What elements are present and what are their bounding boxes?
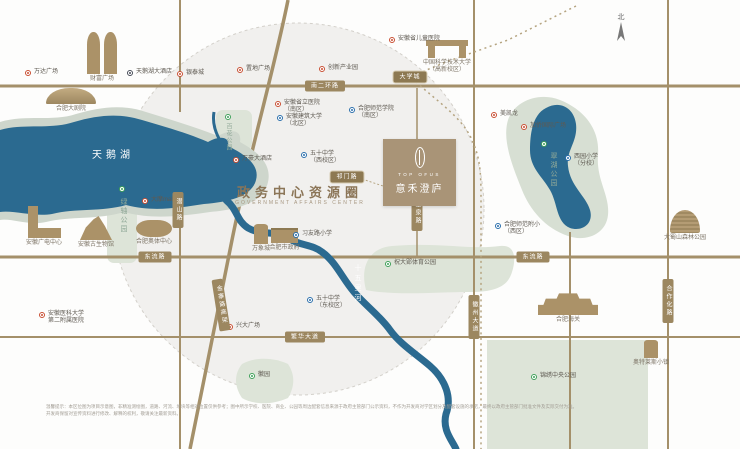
caifu-plaza-icon-part [87,32,100,74]
compass: 北 [608,14,634,49]
north-arrow-icon [616,22,626,46]
grand-theater-label: 合肥大剧院 [56,106,86,113]
provincial-hospital-south-label-line: （南区） [284,107,320,114]
caifu-plaza-label-line: 财富广场 [90,76,114,83]
luzhou-axis-name-text: 绿轴公园 [118,198,128,234]
children-hospital-label: 安徽省儿童医院 [398,36,440,43]
innovation-industry-park-label-line: 创新产业园 [328,65,358,72]
city-government-label: 合肥市政府 [269,245,299,252]
dashu-mountain-icon [670,210,700,233]
xiyoulu-primary-label-line: 习友路小学 [302,231,332,238]
jinxiu-central-park-label-line: 锦绣中央公园 [540,373,576,380]
huiyuan-park-label: 徽园 [258,372,270,379]
poi-shiwuli-river-name: 十五里河 [352,264,362,304]
damo-mall-label: 大摩mall [151,197,174,204]
location-map: 政务中心资源圈 GOVERNMENT AFFAIRS CENTER TOP OF… [0,0,740,449]
jiaqiao-intl-plaza-marker [521,124,527,130]
dongliu-road-east-badge: 东流路 [516,252,549,263]
zhudaying-sports-park-label: 祝大郢体育公园 [394,260,436,267]
anhui-jianzhu-univ-label-line: 安徽建筑大学 [286,114,322,121]
anhui-jianzhu-univ-marker-core [279,117,281,119]
marriott-hotel-marker [233,157,239,163]
olympic-sports-center-label-line: 合肥奥体中心 [136,239,172,246]
hezuohua-road-badge: 合作化路 [663,279,674,323]
ahtv-center-label-line: 安徽广电中心 [26,240,62,247]
jiaqiao-intl-plaza-marker-core [523,126,525,128]
project-lens-icon [415,147,425,168]
anyi-second-hospital-marker-core [41,314,43,316]
poi-small-park-name: 百花公园 [224,123,233,151]
paleontology-museum-label: 安徽古生物馆 [78,242,114,249]
swan-lake-hotel-marker-core [129,72,131,74]
yintai-city-label: 银泰城 [186,70,204,77]
children-hospital-marker [389,37,395,43]
xiyuan-primary-label-line: （分校） [574,161,598,168]
xiyoulu-primary-marker-core [295,234,297,236]
compass-north-label: 北 [608,14,634,22]
zhudaying-sports-park-label-line: 祝大郢体育公园 [394,260,436,267]
xiyuan-primary-label-line: 西园小学 [574,154,598,161]
wanda-plaza-marker-core [27,72,29,74]
building-paleontology-museum: 安徽古生物馆 [80,216,112,240]
poi-right-park-name: 翠湖公园 [548,152,558,188]
marriott-hotel-marker-core [235,159,237,161]
swan-lake-hotel-marker [127,70,133,76]
ustc-gaoxin-icon-part [459,40,466,58]
damo-mall-marker-core [144,200,146,202]
no50-middle-west-label: 五十中学（西校区） [310,151,340,165]
daxuecheng-station-badge: 大学城 [393,72,426,83]
outlets-town-label: 奥特莱斯小镇 [633,360,669,367]
building-olympic-sports-center: 合肥奥体中心 [136,220,172,237]
qianshan-road-badge: 潜山路 [173,192,184,228]
fanhua-avenue-badge: 繁华大道 [285,332,325,343]
grand-theater-label-line: 合肥大剧院 [56,106,86,113]
dashu-mountain-label: 大蜀山森林公园 [664,235,706,242]
swan-lake-name-text: 天鹅湖 [92,146,134,161]
caifu-plaza-icon-part [104,32,117,74]
right-park-tree-marker [541,141,547,147]
xiyoulu-primary-marker [293,232,299,238]
right-park-tree-marker-core [543,143,545,145]
small-park-tree-marker-core [227,116,229,118]
building-outlets-town: 奥特莱斯小镇 [644,340,658,358]
poi-luzhou-axis-name: 绿轴公园 [118,198,128,234]
huiyuan-park-marker-core [251,375,253,377]
wanda-plaza-label-line: 万达广场 [34,69,58,76]
anyi-second-hospital-marker [39,312,45,318]
anyi-second-hospital-label-line: 安徽医科大学 [48,311,84,318]
project-logo-card: TOP OFUS 意禾澄庐 [383,139,456,206]
hefei-customs-label: 合肥海关 [556,317,580,324]
no50-middle-east-marker [307,297,313,303]
caifu-plaza-icon [86,32,118,74]
xiyoulu-primary-label: 习友路小学 [302,231,332,238]
provincial-hospital-south-marker-core [277,103,279,105]
anyi-second-hospital-label-line: 第二附属医院 [48,318,84,325]
provincial-hospital-south-label-line: 安徽省立医院 [284,100,320,107]
outlets-town-icon [644,340,658,358]
building-dashu-mountain: 大蜀山森林公园 [670,210,700,233]
paleontology-museum-icon [80,216,112,240]
provincial-hospital-south-marker [275,101,281,107]
shiwuli-river-name-text: 十五里河 [352,264,362,304]
jinxiu-central-park-marker-core [533,376,535,378]
dongliu-road-west-badge: 东流路 [138,252,171,263]
anhui-jianzhu-univ-label-line: （北区） [286,121,322,128]
huiyuan-park-label-line: 徽园 [258,372,270,379]
zhidi-plaza-label-line: 置地广场 [246,66,270,73]
ustc-gaoxin-label-line: 中国科学技术大学 [423,60,471,67]
anyi-second-hospital-label: 安徽医科大学第二附属医院 [48,311,84,325]
macalline-marker-core [493,114,495,116]
innovation-industry-park-marker [319,66,325,72]
wanda-plaza-label: 万达广场 [34,69,58,76]
hefei-normal-college-label: 合肥师范学院（南区） [358,106,394,120]
luzhou-axis-tree-marker-core [121,188,123,190]
building-hefei-customs: 合肥海关 [538,291,598,315]
building-ahtv-center: 安徽广电中心 [26,206,62,238]
xingda-plaza-label-line: 兴大广场 [236,323,260,330]
no50-middle-east-marker-core [309,299,311,301]
xingda-plaza-label: 兴大广场 [236,323,260,330]
children-hospital-marker-core [391,39,393,41]
paleontology-museum-label-line: 安徽古生物馆 [78,242,114,249]
no50-middle-east-label-line: （东校区） [316,303,346,310]
zhudaying-sports-park-marker-core [387,263,389,265]
ustc-gaoxin-label: 中国科学技术大学（高新校区） [423,60,471,74]
caifu-plaza-label: 财富广场 [90,76,114,83]
building-grand-theater: 合肥大剧院 [46,88,96,104]
south-2nd-ring-badge: 南二环路 [305,81,345,92]
no50-middle-west-label-line: 五十中学 [310,151,340,158]
marriott-hotel-label: 万豪大酒店 [242,156,272,163]
xiyuan-primary-label: 西园小学（分校） [574,154,598,168]
yintai-city-marker-core [179,73,181,75]
no50-middle-west-marker-core [303,154,305,156]
luzhou-axis-tree-marker [119,186,125,192]
building-caifu-plaza: 财富广场 [86,32,118,74]
shifan-primary-label-line: 合肥师范附小 [504,222,540,229]
children-hospital-label-line: 安徽省儿童医院 [398,36,440,43]
huiyuan-park-area [236,359,293,404]
xiyuan-primary-marker-core [567,157,569,159]
no50-middle-east-label-line: 五十中学 [316,296,346,303]
ahtv-center-icon-part [28,228,61,238]
small-park-tree-marker [225,114,231,120]
project-name-en: TOP OFUS [383,172,456,177]
innovation-industry-park-marker-core [321,68,323,70]
shifan-primary-marker-core [497,225,499,227]
yintai-city-label-line: 银泰城 [186,70,204,77]
disclaimer-line-2: 开发商保留对宣传资料进行修改、解释的权利，敬请关注最新资料。 [46,411,706,418]
poi-swan-lake-name: 天鹅湖 [92,146,134,161]
macalline-marker [491,112,497,118]
resource-circle-subtitle: GOVERNMENT AFFAIRS CENTER [210,200,390,206]
project-name-zh: 意禾澄庐 [383,180,456,195]
no50-middle-west-marker [301,152,307,158]
marriott-hotel-label-line: 万豪大酒店 [242,156,272,163]
huizhou-avenue-badge: 徽州大道 [469,295,480,339]
zhudaying-sports-park-marker [385,261,391,267]
no50-middle-east-label: 五十中学（东校区） [316,296,346,310]
ahtv-center-icon [26,206,62,238]
provincial-hospital-south-label: 安徽省立医院（南区） [284,100,320,114]
zhidi-plaza-label: 置地广场 [246,66,270,73]
olympic-sports-center-label: 合肥奥体中心 [136,239,172,246]
ahtv-center-label: 安徽广电中心 [26,240,62,247]
mixc-mall-label-line: 万象城 [252,246,270,253]
grand-theater-icon [46,88,96,104]
right-park-name-text: 翠湖公园 [548,152,558,188]
outlets-town-label-line: 奥特莱斯小镇 [633,360,669,367]
swan-lake-hotel-label: 天鹅湖大酒店 [136,69,172,76]
wanda-plaza-marker [25,70,31,76]
disclaimer: 温馨提示：本区位图为项目示意图，非精准测绘图，道路、河流、地块等相对位置仅供参考… [46,404,706,417]
anhui-jianzhu-univ-marker [277,115,283,121]
xiyuan-primary-marker [565,155,571,161]
jiaqiao-intl-plaza-label-line: 加侨国际广场 [530,123,566,130]
damo-mall-marker [142,198,148,204]
damo-mall-label-line: 大摩mall [151,197,174,204]
innovation-industry-park-label: 创新产业园 [328,65,358,72]
macalline-label-line: 美凯龙 [500,111,518,118]
city-government-label-line: 合肥市政府 [269,245,299,252]
jiaqiao-intl-plaza-label: 加侨国际广场 [530,123,566,130]
hefei-normal-college-marker [349,107,355,113]
sports-park-area [364,245,514,293]
resource-circle-title: 政务中心资源圈 [210,182,390,201]
mixc-mall-label: 万象城 [252,246,270,253]
building-mixc-mall: 万象城 [254,224,268,244]
anhui-jianzhu-univ-label: 安徽建筑大学（北区） [286,114,322,128]
hefei-normal-college-label-line: 合肥师范学院 [358,106,394,113]
no50-middle-west-label-line: （西校区） [310,158,340,165]
zhidi-plaza-marker-core [239,69,241,71]
zhidi-plaza-marker [237,67,243,73]
small-park-name-text: 百花公园 [224,123,233,151]
yintai-city-marker [177,71,183,77]
qimenlu-station-badge: 祁门路 [330,172,363,183]
shifan-primary-marker [495,223,501,229]
hefei-customs-icon [538,291,598,315]
macalline-label: 美凯龙 [500,111,518,118]
jinxiu-central-park-marker [531,374,537,380]
olympic-sports-center-icon [136,220,172,237]
hefei-normal-college-label-line: （南区） [358,113,394,120]
swan-lake-hotel-label-line: 天鹅湖大酒店 [136,69,172,76]
shifan-primary-label: 合肥师范附小（西区） [504,222,540,236]
hefei-normal-college-marker-core [351,109,353,111]
huiyuan-park-marker [249,373,255,379]
central-park-area [487,340,648,449]
shifan-primary-label-line: （西区） [504,229,540,236]
mixc-mall-icon [254,224,268,244]
ustc-gaoxin-label-line: （高新校区） [423,67,471,74]
dashu-mountain-label-line: 大蜀山森林公园 [664,235,706,242]
hefei-customs-label-line: 合肥海关 [556,317,580,324]
jinxiu-central-park-label: 锦绣中央公园 [540,373,576,380]
